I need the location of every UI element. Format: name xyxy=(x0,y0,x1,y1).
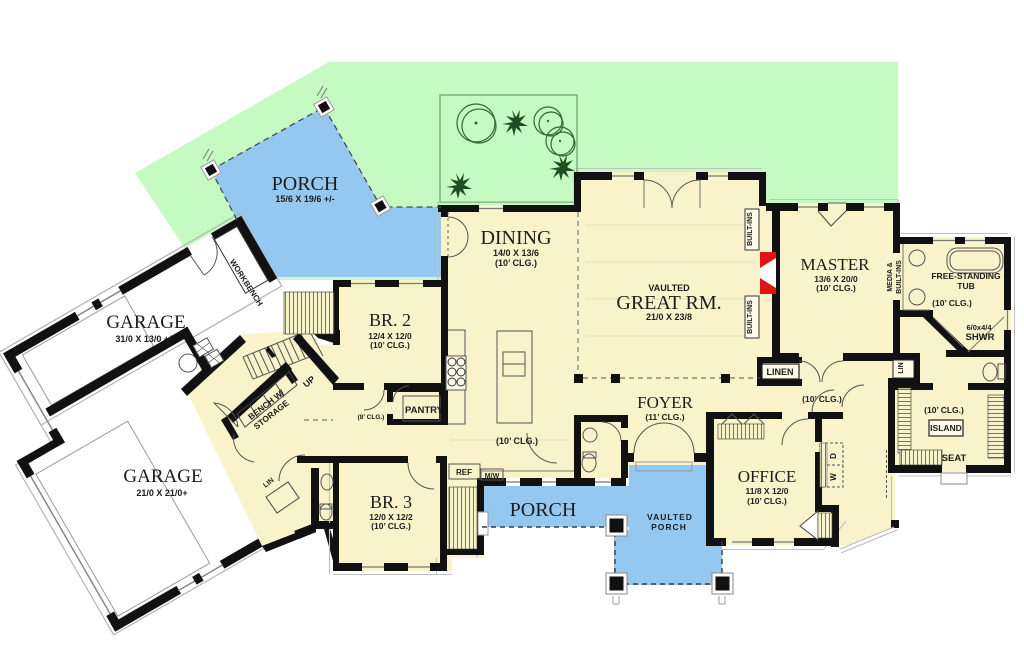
svg-text:M/W: M/W xyxy=(485,473,500,480)
svg-text:GREAT RM.: GREAT RM. xyxy=(616,292,721,314)
svg-text:FOYER: FOYER xyxy=(637,393,693,412)
svg-text:PORCH: PORCH xyxy=(510,499,577,521)
svg-text:W: W xyxy=(829,473,838,481)
svg-text:(10’ CLG.): (10’ CLG.) xyxy=(924,405,964,415)
svg-text:MASTER: MASTER xyxy=(801,255,871,274)
svg-text:TUB: TUB xyxy=(957,281,974,291)
svg-text:(10’ CLG.): (10’ CLG.) xyxy=(371,521,411,531)
svg-text:BUILT-INS: BUILT-INS xyxy=(747,212,754,246)
svg-text:21/0 X 23/8: 21/0 X 23/8 xyxy=(646,312,692,322)
svg-text:(10’ CLG.): (10’ CLG.) xyxy=(495,258,537,268)
svg-text:BR. 2: BR. 2 xyxy=(369,310,411,330)
svg-text:BUILT-INS: BUILT-INS xyxy=(896,260,903,294)
svg-text:PANTRY: PANTRY xyxy=(405,405,444,416)
svg-text:LIN: LIN xyxy=(898,362,905,373)
svg-text:LINEN: LINEN xyxy=(767,367,794,377)
svg-text:31/0 X 13/0 +/-: 31/0 X 13/0 +/- xyxy=(115,334,174,344)
svg-text:(10’ CLG.): (10’ CLG.) xyxy=(496,436,538,446)
svg-text:ISLAND: ISLAND xyxy=(930,423,962,433)
svg-text:MEDIA &: MEDIA & xyxy=(887,262,894,291)
svg-text:(10’ CLG.): (10’ CLG.) xyxy=(370,340,410,350)
svg-text:21/0 X 21/0+: 21/0 X 21/0+ xyxy=(136,488,187,498)
svg-text:SHWR: SHWR xyxy=(965,332,994,343)
svg-text:(10’ CLG.): (10’ CLG.) xyxy=(802,394,842,404)
svg-text:6/0x4/4: 6/0x4/4 xyxy=(966,323,992,332)
svg-text:REF: REF xyxy=(456,468,472,477)
svg-text:OFFICE: OFFICE xyxy=(738,467,797,486)
svg-text:(10’ CLG.): (10’ CLG.) xyxy=(747,496,787,506)
svg-text:14/0 X 13/6: 14/0 X 13/6 xyxy=(493,248,539,258)
svg-text:SEAT: SEAT xyxy=(942,453,967,464)
svg-text:GARAGE: GARAGE xyxy=(123,466,202,487)
svg-text:15/6 X 19/6 +/-: 15/6 X 19/6 +/- xyxy=(275,194,334,204)
svg-text:BUILT-INS: BUILT-INS xyxy=(747,300,754,334)
svg-text:(10’ CLG.): (10’ CLG.) xyxy=(932,298,972,308)
svg-text:(11’ CLG.): (11’ CLG.) xyxy=(645,412,684,422)
svg-text:(8’ CLG.): (8’ CLG.) xyxy=(358,414,385,421)
svg-text:FREE-STANDING: FREE-STANDING xyxy=(931,271,1001,281)
svg-text:GARAGE: GARAGE xyxy=(106,312,185,333)
svg-text:BR. 3: BR. 3 xyxy=(370,492,412,512)
svg-text:PORCH: PORCH xyxy=(272,173,339,195)
svg-text:DINING: DINING xyxy=(480,227,551,249)
svg-text:(10’ CLG.): (10’ CLG.) xyxy=(816,283,856,293)
svg-text:PORCH: PORCH xyxy=(651,522,687,532)
svg-text:VAULTED: VAULTED xyxy=(647,512,693,522)
svg-text:D: D xyxy=(829,453,838,459)
svg-text:11/8 X 12/0: 11/8 X 12/0 xyxy=(745,486,788,496)
